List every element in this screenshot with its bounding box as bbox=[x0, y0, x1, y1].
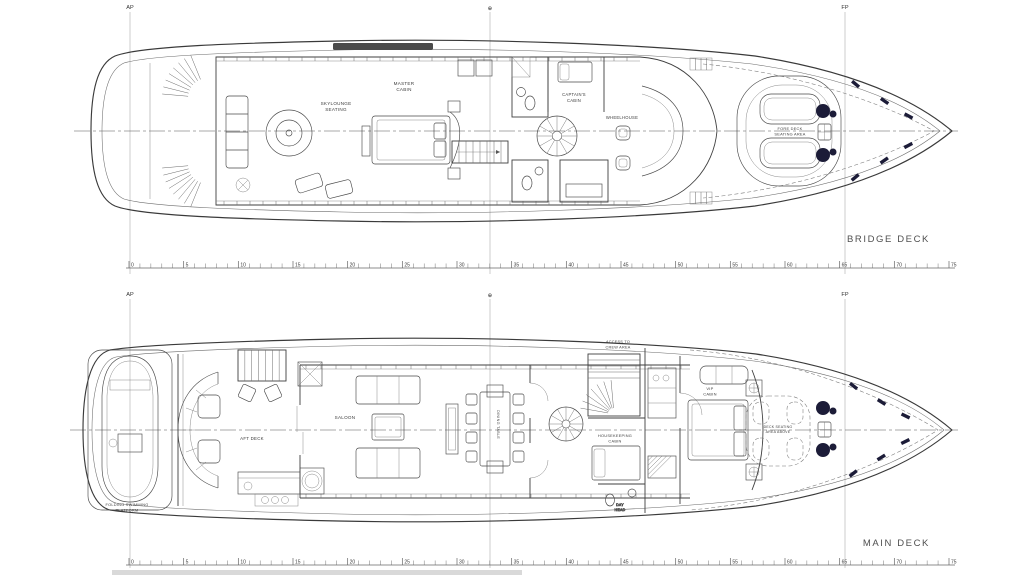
station-ruler-main: 051015202530354045505560657075 bbox=[126, 558, 957, 566]
ruler-label: 30 bbox=[459, 263, 465, 269]
ruler-label: 5 bbox=[186, 560, 189, 566]
ruler-label: 15 bbox=[295, 263, 301, 269]
lounge-chair bbox=[294, 172, 323, 193]
spiral-tread bbox=[540, 126, 553, 134]
dining-chair bbox=[466, 413, 477, 424]
hatch-line bbox=[648, 456, 667, 475]
sink bbox=[653, 375, 659, 381]
ruler-label: 20 bbox=[350, 560, 356, 566]
bow-seating-label-2: AREA ABOVE bbox=[766, 430, 791, 434]
housekeeping-label-2: CABIN bbox=[608, 439, 621, 444]
coffee-table bbox=[372, 414, 404, 440]
spiral-tread bbox=[570, 426, 581, 432]
stair-winder bbox=[581, 408, 609, 413]
deck-chair bbox=[238, 384, 257, 403]
ruler-label: 15 bbox=[295, 560, 301, 566]
hatch-line bbox=[648, 456, 657, 465]
master-cabin-label: MASTER bbox=[394, 81, 415, 86]
ruler-label: 60 bbox=[787, 263, 793, 269]
dining-chair bbox=[513, 413, 524, 424]
day-head-group: DAY HEAD bbox=[606, 489, 637, 512]
burner bbox=[272, 497, 279, 504]
cocktail-table bbox=[198, 395, 220, 418]
toilet bbox=[522, 176, 532, 190]
ruler-label: 10 bbox=[240, 560, 246, 566]
ruler-label: 75 bbox=[951, 560, 957, 566]
vip-cabin-label-2: CABIN bbox=[703, 392, 716, 397]
ruler-label: 60 bbox=[787, 560, 793, 566]
bow-seating-dashed-group: DECK SEATING AREA ABOVE bbox=[746, 396, 810, 466]
stair-winder bbox=[583, 401, 609, 412]
ruler-label: 40 bbox=[568, 560, 574, 566]
cleat bbox=[901, 438, 911, 445]
vip-cabin-group: VIP CABIN bbox=[688, 366, 763, 490]
wardrobe bbox=[458, 60, 474, 76]
spiral-tread bbox=[561, 138, 574, 146]
wardrobe bbox=[476, 60, 492, 76]
bed-bench bbox=[362, 126, 370, 156]
midship-marker: ⊕ bbox=[488, 6, 493, 12]
cleat bbox=[880, 156, 889, 164]
crew-access-label: ACCESS TO bbox=[606, 340, 630, 344]
spiral-core bbox=[562, 420, 570, 428]
spiral-staircase bbox=[549, 407, 583, 441]
stairs-up bbox=[238, 350, 286, 381]
toilet bbox=[606, 494, 615, 506]
sink bbox=[535, 167, 543, 175]
desk bbox=[566, 184, 602, 197]
ruler-label: 25 bbox=[404, 263, 410, 269]
swim-platform-label: FOLDING SWIMMING bbox=[105, 502, 148, 507]
radar-arch bbox=[333, 43, 433, 50]
ruler-label: 65 bbox=[842, 263, 848, 269]
crew-staircase-group: ACCESS TO CREW AREA bbox=[581, 340, 640, 416]
stair-winder bbox=[191, 183, 201, 207]
spiral-core bbox=[552, 131, 562, 141]
pantry-group bbox=[648, 368, 676, 418]
spiral-staircase bbox=[537, 116, 577, 156]
vip-sofa bbox=[700, 366, 748, 384]
spiral-tread bbox=[570, 416, 581, 422]
stair-winder bbox=[162, 166, 188, 168]
datum-lines-bridge-deck: AP ⊕ FP bbox=[126, 5, 849, 274]
hatch-line bbox=[649, 456, 671, 478]
main-deck-plan: FOLDING SWIMMING PLATFORM AFT DECK bbox=[70, 338, 958, 549]
cleat bbox=[904, 142, 914, 149]
dining-table bbox=[480, 392, 510, 466]
saloon-label: SALOON bbox=[335, 415, 356, 420]
spiral-tread bbox=[568, 409, 574, 420]
ruler-label: 70 bbox=[896, 560, 902, 566]
ruler-label: 55 bbox=[732, 560, 738, 566]
bridge-deck-plan: SKYLOUNGE SEATING MASTER CABIN bbox=[74, 40, 958, 245]
ruler-label: 50 bbox=[678, 560, 684, 566]
ruler-label: 45 bbox=[623, 560, 629, 566]
nightstand bbox=[448, 101, 460, 112]
door-swing bbox=[530, 460, 548, 478]
toilet bbox=[525, 96, 535, 110]
aft-deck-label: AFT DECK bbox=[240, 436, 264, 441]
aft-deck-group: AFT DECK bbox=[178, 350, 286, 488]
deck-chair bbox=[264, 384, 283, 403]
skylounge-label-2: SEATING bbox=[325, 107, 347, 112]
ruler-label: 30 bbox=[459, 560, 465, 566]
galley-counter bbox=[238, 472, 300, 494]
anchor-winch bbox=[816, 148, 830, 162]
ap-marker: AP bbox=[126, 292, 134, 298]
ruler-label: 35 bbox=[514, 560, 520, 566]
anchor-winch bbox=[816, 401, 830, 415]
stair-winder bbox=[191, 55, 201, 79]
scan-artifact-band bbox=[112, 570, 522, 575]
ruler-label: 75 bbox=[951, 263, 957, 269]
spiral-tread bbox=[559, 119, 567, 132]
stair-winder bbox=[597, 385, 611, 409]
dining-chair bbox=[513, 432, 524, 443]
wheelhouse-label: WHEELHOUSE bbox=[606, 115, 638, 120]
headboard bbox=[450, 112, 460, 168]
aft-cabin-group bbox=[560, 160, 608, 202]
master-cabin-group bbox=[362, 60, 492, 179]
ruler-label: 0 bbox=[131, 263, 134, 269]
stair-winder bbox=[586, 394, 609, 410]
bed-pillow bbox=[560, 64, 569, 80]
dining-table-label: DINING TABLE bbox=[496, 410, 500, 439]
spiral-tread bbox=[547, 119, 555, 132]
nightstand bbox=[448, 168, 460, 179]
day-head-label: DAY bbox=[616, 503, 624, 507]
dining-chair bbox=[466, 432, 477, 443]
swim-platform-group: FOLDING SWIMMING PLATFORM bbox=[88, 350, 183, 513]
yacht-deck-plan-drawing: AP ⊕ FP AP ⊕ FP bbox=[0, 0, 1024, 576]
vip-cabin-label: VIP bbox=[706, 386, 713, 391]
appliance-box bbox=[300, 468, 324, 494]
helm-chair bbox=[616, 126, 630, 140]
bow-seating-label: DECK SEATING bbox=[764, 425, 793, 429]
ruler-label: 70 bbox=[896, 263, 902, 269]
sink bbox=[244, 482, 252, 490]
tender-wheel bbox=[109, 439, 117, 447]
captain-cabin-label-2: CABIN bbox=[567, 98, 581, 103]
fp-marker: FP bbox=[841, 5, 848, 11]
captain-cabin-group bbox=[548, 57, 604, 112]
seat-pad bbox=[787, 402, 803, 424]
midship-marker: ⊕ bbox=[488, 293, 493, 299]
cleat bbox=[849, 469, 858, 477]
laundry-unit bbox=[648, 456, 676, 478]
swim-platform-label-2: PLATFORM bbox=[116, 508, 139, 513]
spiral-tread bbox=[568, 428, 574, 439]
dining-group: DINING TABLE bbox=[466, 385, 524, 473]
ruler-label: 20 bbox=[350, 263, 356, 269]
stair-winder bbox=[163, 169, 188, 175]
fore-deck-seating-label-2: SEATING AREA bbox=[774, 132, 805, 137]
round-table bbox=[266, 110, 312, 156]
stair-winder bbox=[611, 380, 613, 408]
ap-marker: AP bbox=[126, 5, 134, 11]
spiral-tread bbox=[558, 428, 564, 439]
galley-group bbox=[238, 468, 324, 506]
sofa bbox=[356, 376, 420, 404]
spiral-tread bbox=[558, 409, 564, 420]
sink bbox=[628, 489, 636, 497]
ruler-label: 0 bbox=[131, 560, 134, 566]
spiral-tread bbox=[551, 426, 562, 432]
helm-chair bbox=[616, 156, 630, 170]
stair-winder bbox=[162, 94, 188, 96]
anchor-winch bbox=[816, 104, 830, 118]
housekeeping-cabin-group: HOUSEKEEPING CABIN bbox=[592, 433, 676, 480]
staircase-down bbox=[452, 141, 508, 163]
ruler-label: 50 bbox=[678, 263, 684, 269]
ruler-label: 35 bbox=[514, 263, 520, 269]
fp-marker: FP bbox=[841, 292, 848, 298]
bridge-deck-title: BRIDGE DECK bbox=[847, 234, 930, 245]
sofa bbox=[356, 448, 420, 478]
spiral-tread bbox=[559, 140, 567, 153]
hatched-box bbox=[648, 456, 676, 478]
deck-plan-sheet: AP ⊕ FP AP ⊕ FP bbox=[0, 0, 1024, 576]
fore-deck-seating-label: FORE DECK bbox=[778, 126, 803, 131]
day-head-label-2: HEAD bbox=[615, 508, 626, 512]
housekeeping-label: HOUSEKEEPING bbox=[598, 433, 632, 438]
hatch-line bbox=[648, 456, 653, 461]
stair-winder bbox=[166, 172, 190, 182]
dining-chair bbox=[466, 394, 477, 405]
lounge-chair bbox=[325, 179, 354, 199]
cocktail-table bbox=[198, 440, 220, 463]
captain-cabin-label: CAPTAIN'S bbox=[562, 92, 586, 97]
burner bbox=[262, 497, 269, 504]
cleat bbox=[904, 112, 914, 119]
seat-pad bbox=[787, 438, 803, 460]
anchor-winch bbox=[816, 443, 830, 457]
burner bbox=[282, 497, 289, 504]
spiral-tread bbox=[540, 138, 553, 146]
dining-chair bbox=[513, 451, 524, 462]
ruler-label: 40 bbox=[568, 263, 574, 269]
ruler-label: 25 bbox=[404, 560, 410, 566]
main-deck-title: MAIN DECK bbox=[863, 538, 930, 549]
captain-bed bbox=[558, 62, 592, 82]
direction-arrow bbox=[496, 150, 500, 154]
ruler-label: 65 bbox=[842, 560, 848, 566]
bed-pillow bbox=[434, 141, 446, 157]
station-ruler-bridge: 051015202530354045505560657075 bbox=[126, 261, 957, 269]
crew-bed bbox=[592, 446, 640, 480]
ruler-label: 55 bbox=[732, 263, 738, 269]
stair-winder bbox=[163, 87, 188, 93]
cleat bbox=[877, 398, 886, 406]
pantry-counter bbox=[648, 368, 676, 418]
door-swing bbox=[530, 383, 548, 401]
spiral-tread bbox=[551, 416, 562, 422]
spiral-tread bbox=[561, 126, 574, 134]
skylounge-label: SKYLOUNGE bbox=[321, 101, 352, 106]
sideboard bbox=[446, 404, 458, 454]
stair-winder bbox=[166, 80, 190, 90]
sink bbox=[663, 375, 669, 381]
day-bathroom bbox=[512, 160, 548, 202]
ruler-label: 45 bbox=[623, 263, 629, 269]
sink bbox=[517, 88, 526, 97]
ruler-label: 10 bbox=[240, 263, 246, 269]
spiral-tread bbox=[547, 140, 555, 153]
superstructure bbox=[216, 43, 717, 205]
ruler-label: 5 bbox=[186, 263, 189, 269]
bed-pillow bbox=[594, 449, 605, 477]
master-bathroom bbox=[512, 57, 548, 117]
dining-chair bbox=[466, 451, 477, 462]
dining-chair bbox=[513, 394, 524, 405]
master-cabin-label-2: CABIN bbox=[396, 87, 411, 92]
crew-access-label-2: CREW AREA bbox=[605, 346, 630, 350]
